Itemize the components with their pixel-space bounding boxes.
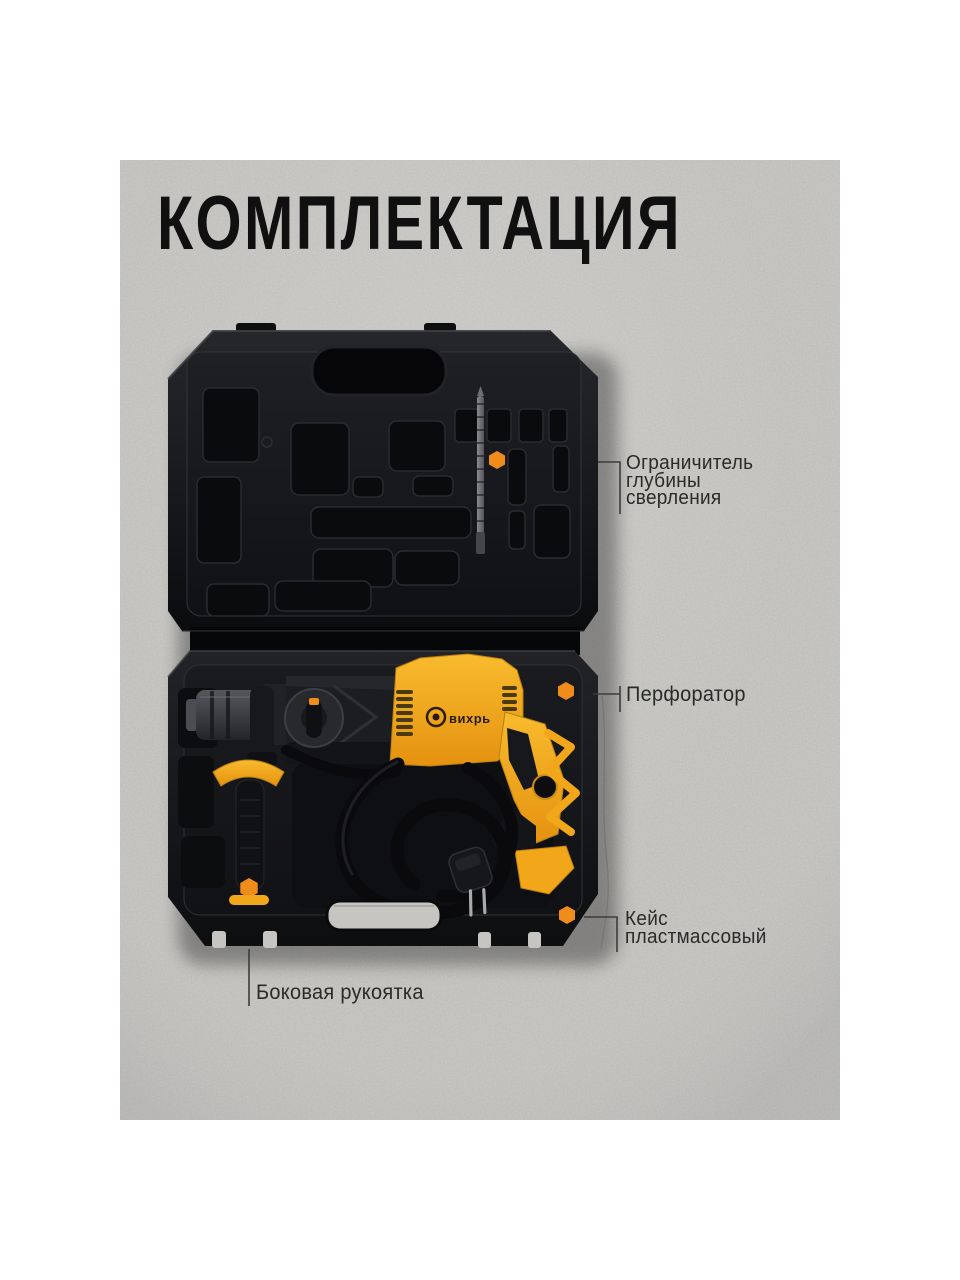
product-infographic: вихрь [0, 0, 960, 1280]
side-handle-crossbar [229, 895, 269, 905]
callout-side-handle: Боковая рукоятка [256, 981, 424, 1005]
drill-bit [476, 386, 485, 554]
brand-logo-text: вихрь [449, 711, 491, 726]
bottom-grip-slot [327, 901, 441, 930]
callout-case: Кейс пластмассовый [625, 910, 767, 946]
callout-depth-stop: Ограничитель глубины сверления [626, 455, 753, 508]
mode-dial [285, 689, 343, 747]
case-lid [168, 323, 598, 631]
lid-handle-cutout [312, 347, 446, 395]
drill-chuck [186, 684, 290, 745]
side-handle-grip [236, 780, 264, 890]
callout-hammer: Перфоратор [626, 683, 746, 707]
page-title: КОМПЛЕКТАЦИЯ [157, 186, 682, 262]
